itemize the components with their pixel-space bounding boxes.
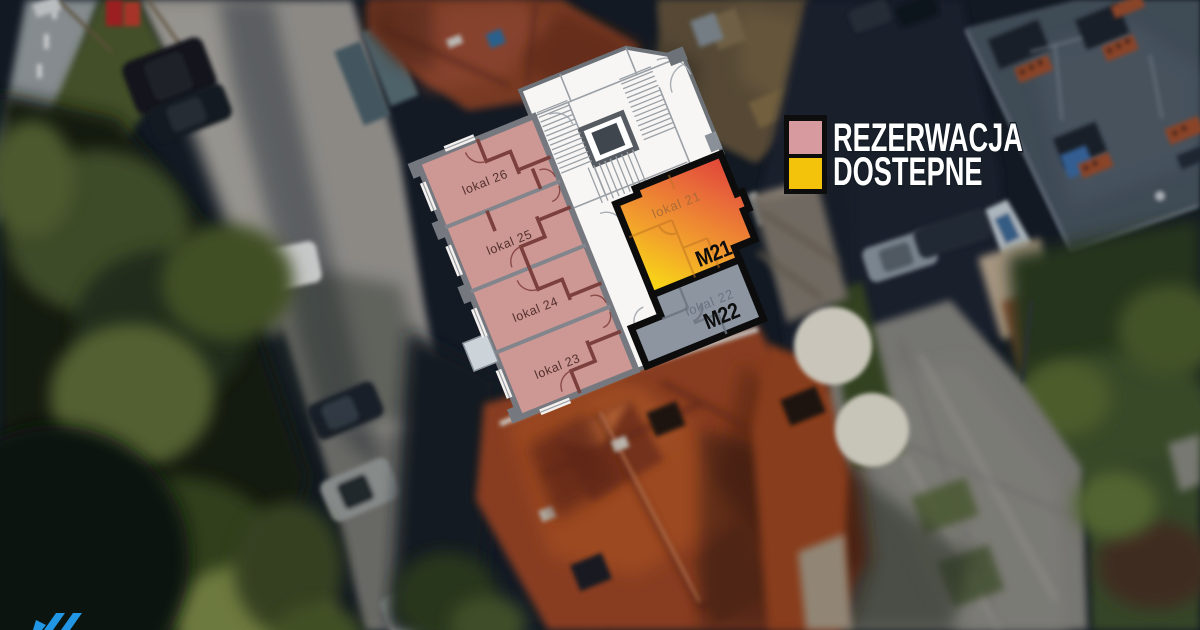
svg-text:DOSTEPNE: DOSTEPNE — [833, 150, 983, 194]
